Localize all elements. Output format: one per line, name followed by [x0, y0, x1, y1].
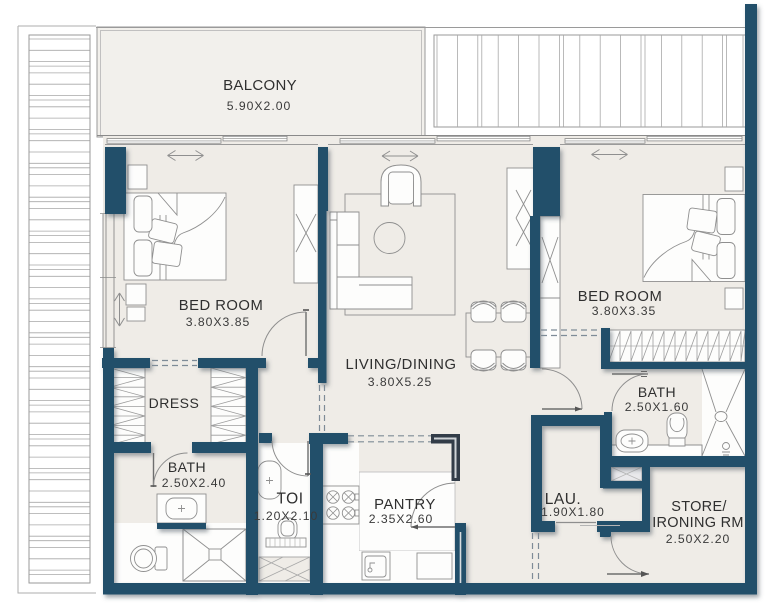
svg-text:BATH: BATH [168, 459, 206, 475]
svg-text:2.50X2.40: 2.50X2.40 [162, 476, 227, 490]
svg-text:1.90X1.80: 1.90X1.80 [541, 505, 605, 519]
svg-text:LIVING/DINING: LIVING/DINING [346, 357, 457, 373]
svg-text:3.80X5.25: 3.80X5.25 [368, 375, 433, 389]
svg-text:STORE/: STORE/ [671, 499, 727, 515]
svg-text:2.50X2.20: 2.50X2.20 [666, 532, 731, 546]
svg-text:BALCONY: BALCONY [223, 77, 297, 94]
svg-text:5.90X2.00: 5.90X2.00 [227, 99, 292, 113]
svg-text:2.35X2.60: 2.35X2.60 [369, 512, 434, 526]
svg-text:BED ROOM: BED ROOM [578, 289, 663, 305]
svg-text:3.80X3.85: 3.80X3.85 [186, 315, 251, 329]
svg-text:TOI: TOI [276, 491, 303, 508]
svg-text:1.20X2.10: 1.20X2.10 [254, 509, 319, 523]
svg-text:2.50X1.60: 2.50X1.60 [625, 400, 690, 414]
svg-text:IRONING RM: IRONING RM [652, 515, 744, 531]
svg-text:BED ROOM: BED ROOM [179, 298, 264, 314]
svg-text:DRESS: DRESS [149, 395, 200, 411]
svg-text:3.80X3.35: 3.80X3.35 [592, 304, 657, 318]
svg-text:BATH: BATH [638, 384, 676, 400]
svg-text:PANTRY: PANTRY [374, 497, 436, 513]
